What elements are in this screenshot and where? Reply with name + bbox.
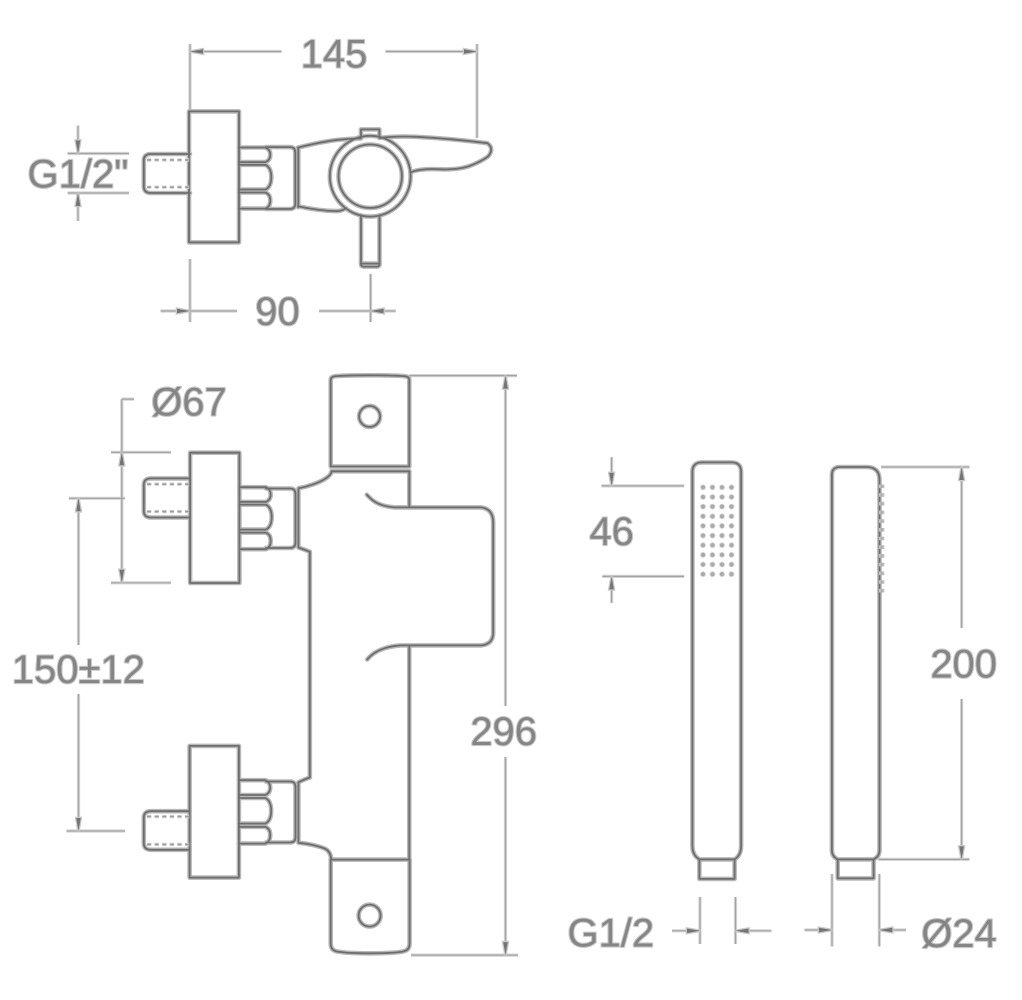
svg-text:G1/2": G1/2": [28, 152, 129, 196]
svg-text:145: 145: [301, 32, 368, 76]
svg-text:Ø67: Ø67: [151, 380, 227, 424]
svg-text:Ø24: Ø24: [921, 912, 997, 956]
svg-text:296: 296: [470, 710, 537, 754]
svg-text:46: 46: [589, 510, 634, 554]
svg-text:90: 90: [255, 290, 300, 334]
svg-text:G1/2: G1/2: [567, 911, 654, 955]
svg-text:150±12: 150±12: [12, 648, 145, 692]
svg-text:200: 200: [930, 643, 997, 687]
